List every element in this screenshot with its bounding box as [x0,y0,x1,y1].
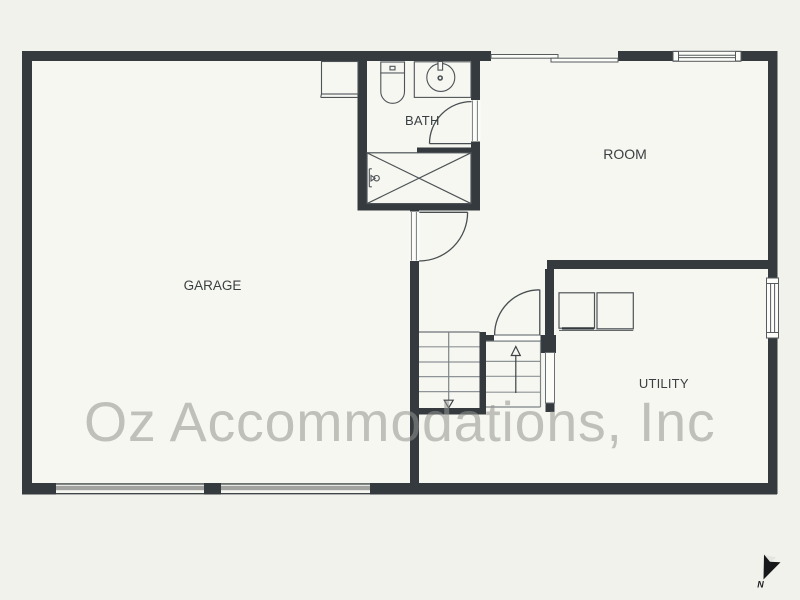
svg-text:Oz Accommodations, Inc: Oz Accommodations, Inc [84,391,715,453]
svg-text:ROOM: ROOM [603,146,647,162]
svg-text:GARAGE: GARAGE [184,278,242,293]
svg-text:N: N [757,580,764,590]
svg-text:UTILITY: UTILITY [639,376,689,391]
svg-text:BATH: BATH [405,113,440,128]
